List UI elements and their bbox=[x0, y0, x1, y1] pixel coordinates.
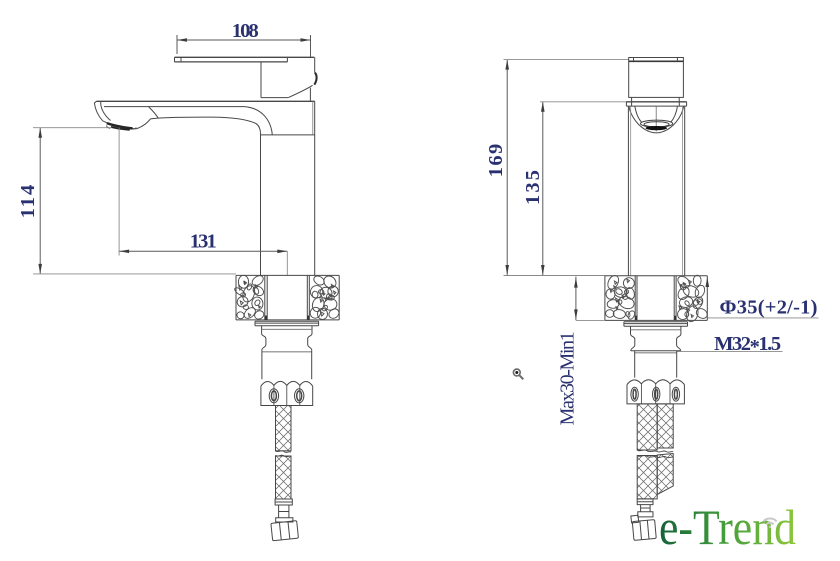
svg-text:M32*1.5: M32*1.5 bbox=[714, 333, 781, 358]
svg-text:114: 114 bbox=[17, 185, 39, 219]
svg-text:169: 169 bbox=[485, 144, 507, 178]
svg-text:135: 135 bbox=[522, 170, 544, 205]
svg-text:Φ35(+2/-1): Φ35(+2/-1) bbox=[720, 296, 818, 318]
svg-text:131: 131 bbox=[190, 231, 217, 253]
svg-text:e-Trend: e-Trend bbox=[659, 499, 796, 555]
svg-text:108: 108 bbox=[232, 20, 259, 42]
svg-text:Max30-Min1: Max30-Min1 bbox=[557, 331, 579, 425]
